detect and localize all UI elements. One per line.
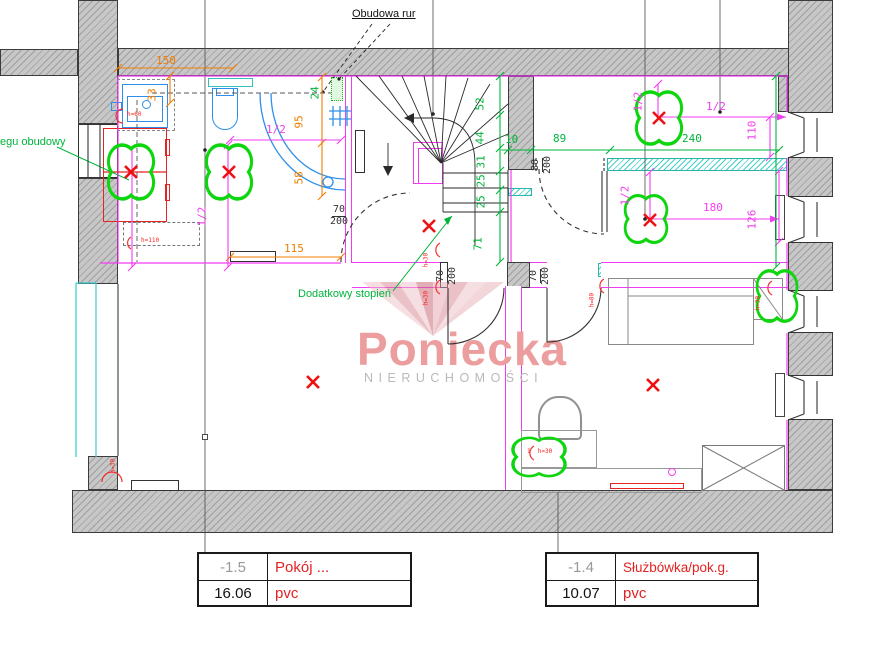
dim-110: 110 <box>746 120 758 140</box>
dim-25b: 25 <box>475 195 487 208</box>
dim-25a: 25 <box>475 174 487 187</box>
dim-71: 71 <box>472 237 484 250</box>
pipe-box-green <box>331 77 343 101</box>
window-right-4 <box>788 375 833 420</box>
dim-115: 115 <box>284 243 304 255</box>
room-area: 16.06 <box>199 580 267 605</box>
room-floor: pvc <box>615 580 757 605</box>
room-floor: pvc <box>267 580 410 605</box>
dim-half-bath-h: 1/2 <box>266 124 286 136</box>
wall-right-pilaster <box>778 76 788 112</box>
dim-52: 52 <box>474 97 486 110</box>
wall-left-arm <box>0 49 78 76</box>
wall-partition-vertical <box>505 286 522 490</box>
h30-stair-2: h=30 <box>424 291 430 305</box>
cabinet-tab-2 <box>165 184 170 201</box>
window-right-2 <box>788 196 833 243</box>
watermark-brand: Poniecka <box>357 322 567 376</box>
dim-half-mid-v: 1/2 <box>619 185 631 205</box>
shelf-115 <box>230 251 276 262</box>
cabinet-tab-1 <box>165 139 170 156</box>
dim-240: 240 <box>682 133 702 145</box>
dim-180: 180 <box>703 202 723 214</box>
floor-plan-canvas: Poniecka NIERUCHOMOŚCI <box>0 0 878 647</box>
stair-newel <box>355 130 365 173</box>
dim-89: 89 <box>553 133 566 145</box>
wall-band-seg1 <box>352 262 440 288</box>
window-right-1 <box>788 112 833 158</box>
stair-landing-inner <box>418 148 443 184</box>
lintel-band <box>607 158 787 171</box>
radiator-right-1 <box>775 195 785 240</box>
dim-24: 24 <box>309 86 321 99</box>
radiator-right-2 <box>775 373 785 417</box>
dashed-box <box>123 222 200 246</box>
radiator-bottom-left <box>131 480 179 491</box>
room-table-pokoj: -1.5 Pokój ... 16.06 pvc <box>197 552 412 607</box>
dim-58: 58 <box>293 171 305 184</box>
washer-tap <box>111 102 122 111</box>
door-jamb-a <box>440 262 448 288</box>
desk <box>521 430 597 468</box>
room-name: Służbówka/pok.g. <box>615 554 757 580</box>
nightstand <box>753 278 783 320</box>
window-right-3 <box>788 290 833 333</box>
label-obudowa-rur: Obudowa rur <box>352 8 416 20</box>
dim-95: 95 <box>293 115 305 128</box>
washer-knob <box>142 100 151 109</box>
door-80-200: 80200 <box>531 156 553 174</box>
wall-bath-stair <box>345 76 352 263</box>
wall-bottom-left-jog <box>88 456 118 490</box>
wall-stair-right <box>508 76 534 170</box>
pipe-casing-cabinet <box>103 128 167 222</box>
room-number: -1.5 <box>199 554 267 580</box>
wall-top <box>118 48 790 76</box>
socket-circle <box>668 468 676 476</box>
wall-pillar-doors <box>507 262 530 288</box>
lintel-stub-b <box>508 188 532 196</box>
radiator-red <box>610 483 684 489</box>
dim-44: 44 <box>474 131 486 144</box>
wall-bottom <box>72 490 833 533</box>
bed <box>608 278 754 345</box>
room-area: 10.07 <box>547 580 615 605</box>
label-dodatkowy-stopien: Dodatkowy stopień <box>298 288 391 300</box>
dim-126: 126 <box>746 209 758 229</box>
dim-half-topright-h: 1/2 <box>706 101 726 113</box>
toilet-seat <box>216 88 234 96</box>
dim-half-topright-v: 1/2 <box>632 91 644 111</box>
wall-band-seg2 <box>530 262 547 288</box>
h80-bed: h=80 <box>590 293 596 307</box>
room-table-sluzbowka: -1.4 Służbówka/pok.g. 10.07 pvc <box>545 552 759 607</box>
room-name: Pokój ... <box>267 554 410 580</box>
toilet-cistern <box>208 78 253 87</box>
room-number: -1.4 <box>547 554 615 580</box>
dim-31: 31 <box>475 155 487 168</box>
label-przebieg-obudowy: egu obudowy <box>0 136 65 148</box>
wardrobe <box>702 445 785 491</box>
